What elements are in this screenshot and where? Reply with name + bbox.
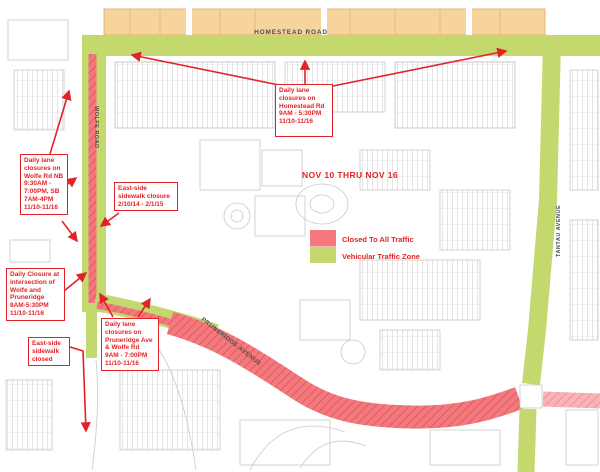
tantau-avenue-label: TANTAU AVENUE (556, 205, 562, 257)
homestead-road-label: HOMESTEAD ROAD (254, 29, 328, 36)
wolfe-road-label: WOLFE ROAD (93, 106, 99, 149)
arrow-wolfe-south (62, 221, 77, 241)
pruneridge-tantau-intersection (520, 385, 542, 408)
date-range-title: NOV 10 THRU NOV 16 (302, 170, 398, 180)
arrow-sidewalk-closed (70, 347, 86, 431)
pruneridge-east-pink-band (543, 399, 600, 401)
legend-label-vehicular: Vehicular Traffic Zone (342, 252, 420, 261)
traffic-closure-map: HOMESTEAD ROAD WOLFE ROAD PRUNERIDGE AVE… (0, 0, 600, 472)
arrow-wolfe-mid (68, 178, 76, 184)
note-homestead-lane-closures: Daily lane closures on Homestead Rd 9AM … (275, 84, 333, 137)
wolfe-road-closed-stripe (89, 54, 97, 303)
legend-label-closed: Closed To All Traffic (342, 235, 414, 244)
legend: Closed To All Traffic Vehicular Traffic … (310, 230, 420, 263)
note-wolfe-lane-closures: Daily lane closures on Wolfe Rd NB 9:30A… (20, 154, 68, 215)
note-intersection-closure: Daily Closure at intersection of Wolfe a… (6, 268, 65, 321)
wolfe-road-south-band (86, 312, 97, 358)
tantau-road-band-north (531, 44, 552, 384)
legend-swatch-vehicular (310, 247, 336, 263)
note-pruneridge-lane-closures: Daily lane closures on Pruneridge Ave & … (101, 318, 159, 371)
note-east-sidewalk-closed: East-side sidewalk closed (28, 337, 70, 366)
homestead-road-band (82, 35, 600, 56)
legend-swatch-closed (310, 230, 336, 247)
map-canvas: HOMESTEAD ROAD WOLFE ROAD PRUNERIDGE AVE… (0, 0, 600, 472)
note-east-sidewalk-closure-dates: East-side sidewalk closure 2/10/14 - 2/1… (114, 182, 178, 211)
tantau-road-band-south (526, 409, 528, 472)
